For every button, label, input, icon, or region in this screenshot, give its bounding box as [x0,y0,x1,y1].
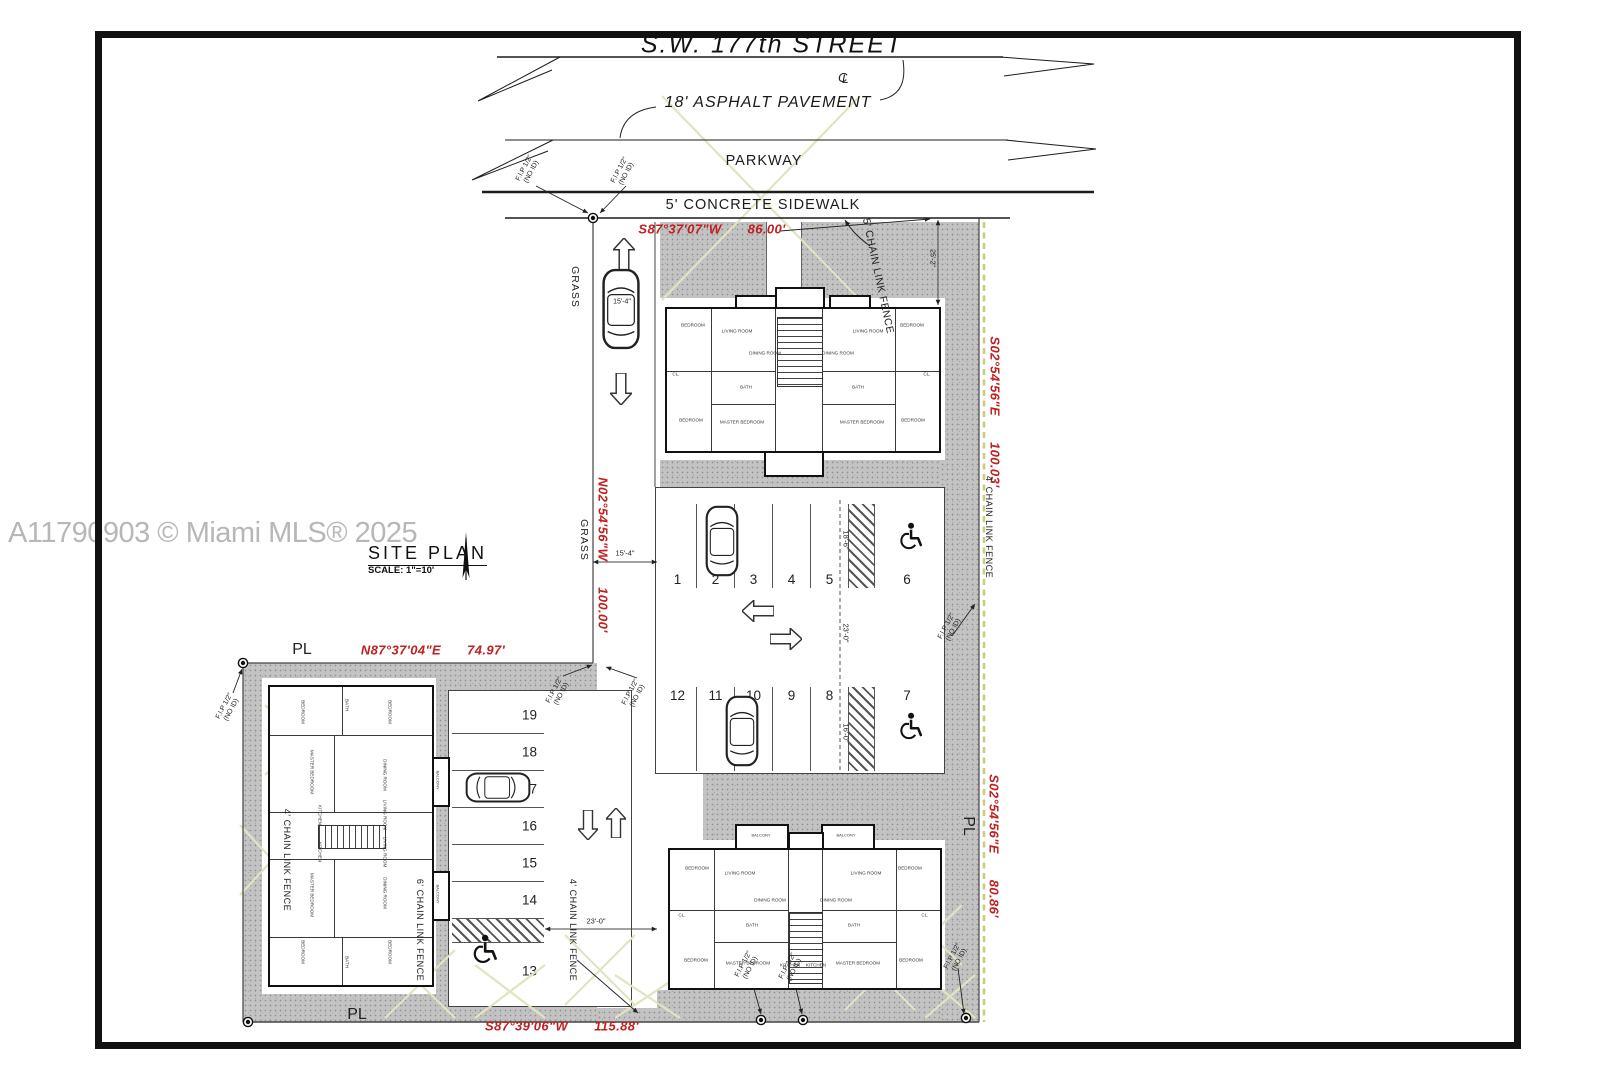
room-label: BATH [746,923,758,928]
room-label: BATH [852,385,864,390]
drawing-title: SITE PLAN [368,543,487,566]
room-label: CL. [678,913,685,918]
wall [711,404,775,405]
room-label: MASTER BEDROOM [840,420,884,425]
property-line-label: PL [292,641,312,659]
wall [270,735,432,736]
room-label: BEDROOM [685,866,709,871]
room-label: BEDROOM [899,958,923,963]
room-label: BEDROOM [301,700,306,724]
bearing-mid: N87°37'04"E74.97' [361,643,505,658]
room-label: KITCHEN [318,842,323,862]
stairwell [318,825,386,849]
parkway-label: PARKWAY [726,153,803,169]
room-label: KITCHEN [318,805,323,825]
down-arrow [610,373,631,405]
wall [270,859,432,860]
room-label: MASTER BEDROOM [720,420,764,425]
room-label: DINING ROOM [754,898,786,903]
dim-16-0: 16'-0" [842,723,851,742]
left-arrow [742,600,774,621]
wall [670,910,788,911]
building-west [268,685,434,987]
wheelchair-icon [475,935,496,962]
room-label: BEDROOM [898,866,922,871]
site-plan-drawing: 1 2 3 4 5 6 12 11 10 9 8 7 19 18 17 16 1… [0,0,1600,1066]
room-label: CL. [921,913,928,918]
wall [822,910,940,911]
street-name: S.W. 177th STREET [641,31,903,60]
room-label: CL. [923,372,930,377]
centerline-l: L [842,72,849,86]
wall [667,371,775,372]
room-label: BATH [740,385,752,390]
fence-label-4ft: 4' CHAIN LINK FENCE [568,879,578,981]
dim-23-0: 23'-0" [586,917,605,926]
room-label: DINING ROOM [820,898,852,903]
street-lines [472,57,1096,218]
property-line-label: PL [959,816,977,836]
room-label: BALCONY [836,833,855,838]
room-label: BEDROOM [900,323,924,328]
wall [342,937,343,985]
room-label: BEDROOM [301,940,306,964]
room-label: MASTER BEDROOM [310,750,315,794]
north-vestibule [764,449,824,477]
wall [775,309,776,451]
wall [822,942,896,943]
wall [822,404,895,405]
room-label: DINING ROOM [749,351,781,356]
property-line-label: PL [347,1006,367,1024]
mls-watermark: A11790903 © Miami MLS® 2025 [8,517,417,550]
bearing-west: N02°54'56"W100.00' [596,477,611,633]
room-label: BEDROOM [388,940,393,964]
room-label: BALCONY [436,884,441,903]
car-stall-11 [727,697,758,765]
room-label: BALCONY [751,833,770,838]
wall [822,371,939,372]
wall [714,850,715,988]
room-label: BATH [345,699,350,711]
dim-15-4: 15'-4" [613,299,631,306]
car-stall-17 [467,773,530,801]
room-label: BATH [345,956,350,968]
drawing-scale: SCALE: 1"=10' [368,565,434,576]
down-arrow [578,810,598,840]
dim-18-6: 18'-6" [842,530,851,549]
wheelchair-icon [901,523,921,548]
room-label: BEDROOM [681,323,705,328]
fence-label-6ft: 6' CHAIN LINK FENCE [415,879,425,981]
dim-15-4: 15'-4" [615,549,634,558]
room-label: BEDROOM [901,418,925,423]
wall [270,812,432,813]
room-label: BATH [848,923,860,928]
fence-label-4ft: 4' CHAIN LINK FENCE [282,809,292,911]
wall [711,309,712,451]
wheelchair-icon [901,713,921,738]
room-label: DINING ROOM [822,351,854,356]
room-label: LIVING ROOM [383,800,388,831]
right-arrow [770,628,802,649]
up-arrow [606,808,626,838]
room-label: LIVING ROOM [725,871,756,876]
room-label: MASTER BEDROOM [310,873,315,917]
dim-25-2: 25'-2" [929,249,936,267]
room-label: BALCONY [436,770,441,789]
car-stall-2 [707,507,738,575]
bearing-south: S87°39'06"W115.88' [485,1019,639,1034]
up-arrow [613,238,634,270]
grass-label: GRASS [569,266,581,308]
wall [270,937,432,938]
building-north [665,307,941,453]
bearing-east-upper: S02°54'56"E100.03' [988,336,1003,487]
room-label: KITCHEN [806,963,826,968]
car-driveway [604,270,639,348]
room-label: DINING ROOM [383,877,388,909]
room-label: LIVING ROOM [851,871,882,876]
wall [334,735,335,812]
room-label: CL. [672,372,679,377]
room-label: BEDROOM [388,700,393,724]
grass-label: GRASS [578,519,590,561]
wall [714,942,788,943]
room-label: MASTER BEDROOM [836,961,880,966]
room-label: LIVING ROOM [383,837,388,868]
bearing-north: S87°37'07"W86.00' [638,222,785,237]
stairwell [777,317,823,387]
wall [342,687,343,735]
room-label: BEDROOM [679,418,703,423]
fence-label-4ft: 4' CHAIN LINK FENCE [984,476,994,578]
wall [334,859,335,937]
room-label: LIVING ROOM [853,329,884,334]
room-label: BEDROOM [684,958,708,963]
dim-23-0: 23'-0" [842,623,851,642]
sidewalk-label: 5' CONCRETE SIDEWALK [666,197,861,213]
wall [896,850,897,988]
room-label: LIVING ROOM [722,329,753,334]
bearing-east-lower: S02°54'56"E80.86' [987,774,1002,918]
room-label: DINING ROOM [383,759,388,791]
pavement-label: 18' ASPHALT PAVEMENT [665,94,872,112]
